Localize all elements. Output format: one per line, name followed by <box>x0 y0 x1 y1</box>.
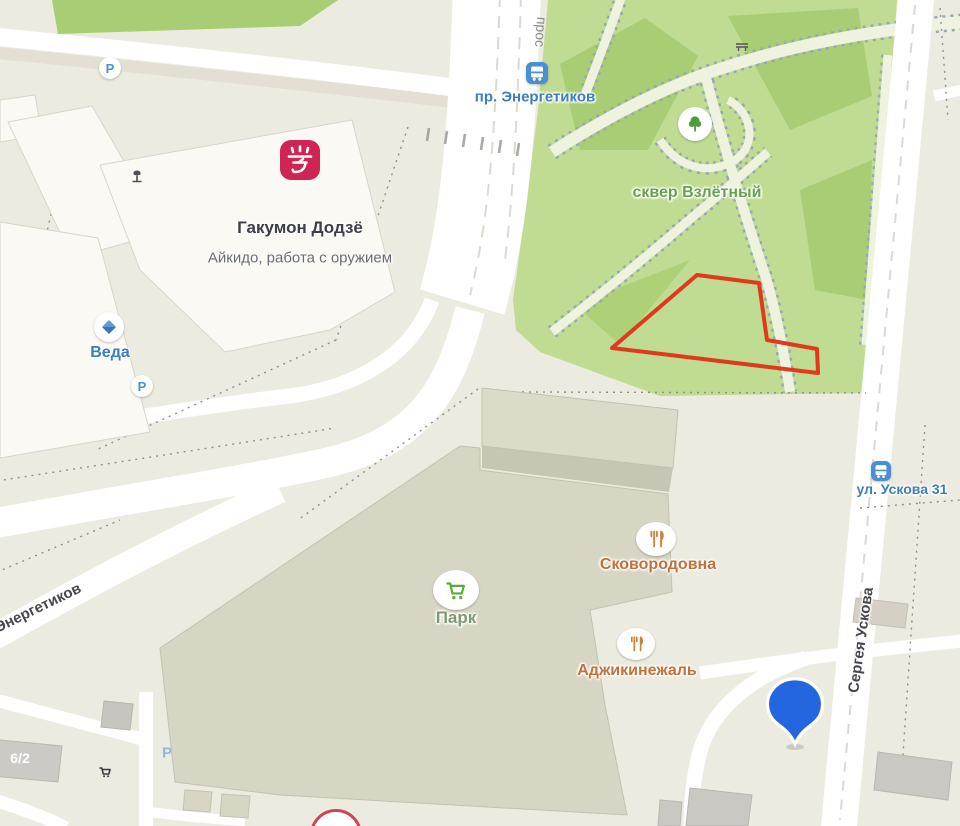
parking-icon[interactable]: P <box>99 57 121 79</box>
poi-label-park-store[interactable]: Парк <box>436 608 477 628</box>
shop-icon[interactable] <box>99 766 112 779</box>
parking-icon[interactable]: P <box>162 745 172 762</box>
poi-label-adzhikinezhal[interactable]: Аджикинежаль <box>577 662 697 680</box>
map-canvas[interactable] <box>0 0 960 826</box>
dojo-icon[interactable] <box>280 140 320 180</box>
poi-label-skver[interactable]: сквер Взлётный <box>632 184 761 202</box>
map-view: Гакумон Додзё Айкидо, работа с оружием В… <box>0 0 960 826</box>
poi-label-skovorodovna[interactable]: Сковородовна <box>600 556 716 574</box>
tree-icon[interactable] <box>678 107 712 141</box>
poi-label-veda[interactable]: Веда <box>90 344 130 362</box>
monument-icon <box>130 169 144 183</box>
cart-icon[interactable] <box>433 570 479 610</box>
parking-icon[interactable]: P <box>131 375 153 397</box>
transit-stop-label[interactable]: ул. Ускова 31 <box>857 481 948 497</box>
street-label-prospekt: прос <box>532 16 550 47</box>
transit-stop-label[interactable]: пр. Энергетиков <box>475 89 595 106</box>
restaurant-icon[interactable] <box>636 522 676 556</box>
bus-stop-icon[interactable] <box>871 461 891 481</box>
bus-stop-icon[interactable] <box>526 62 548 84</box>
diamond-icon[interactable] <box>94 312 124 342</box>
building-number: 6/2 <box>10 750 29 766</box>
poi-sublabel-dojo: Айкидо, работа с оружием <box>208 250 392 267</box>
restaurant-icon[interactable] <box>617 628 655 660</box>
poi-label-dojo[interactable]: Гакумон Додзё <box>237 218 363 238</box>
